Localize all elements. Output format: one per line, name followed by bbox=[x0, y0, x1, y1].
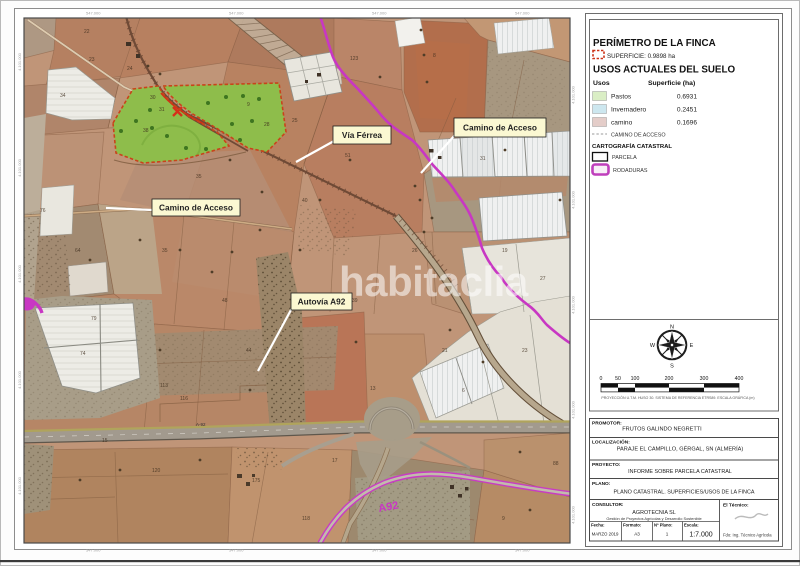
svg-text:44: 44 bbox=[246, 348, 252, 354]
svg-text:79: 79 bbox=[91, 316, 97, 322]
svg-text:8: 8 bbox=[433, 53, 436, 59]
svg-text:100: 100 bbox=[631, 376, 640, 382]
svg-text:175: 175 bbox=[252, 478, 261, 484]
svg-text:9: 9 bbox=[502, 516, 505, 522]
svg-text:4.101.000: 4.101.000 bbox=[17, 476, 22, 495]
svg-text:Formato:: Formato: bbox=[623, 523, 641, 528]
svg-text:31: 31 bbox=[480, 156, 486, 162]
svg-text:Gestión de Proyectos Agrícolas: Gestión de Proyectos Agrícolas y Desarro… bbox=[606, 516, 701, 521]
svg-text:51: 51 bbox=[345, 153, 351, 159]
svg-text:120: 120 bbox=[152, 468, 161, 474]
svg-text:1: 1 bbox=[666, 532, 669, 537]
svg-text:N: N bbox=[670, 325, 674, 331]
svg-text:6: 6 bbox=[462, 388, 465, 394]
svg-text:camino: camino bbox=[611, 120, 633, 127]
svg-text:17: 17 bbox=[332, 458, 338, 464]
svg-text:35: 35 bbox=[162, 248, 168, 254]
svg-text:74: 74 bbox=[80, 351, 86, 357]
svg-text:547.000: 547.000 bbox=[229, 548, 244, 553]
svg-text:4.101.000: 4.101.000 bbox=[571, 85, 576, 104]
svg-text:547.000: 547.000 bbox=[515, 11, 530, 16]
svg-text:4.101.000: 4.101.000 bbox=[17, 158, 22, 177]
svg-text:Camino de Acceso: Camino de Acceso bbox=[159, 202, 233, 212]
svg-text:USOS ACTUALES DEL SUELO: USOS ACTUALES DEL SUELO bbox=[593, 65, 735, 76]
svg-text:40: 40 bbox=[302, 198, 308, 204]
svg-text:13: 13 bbox=[370, 386, 376, 392]
svg-text:CONSULTOR:: CONSULTOR: bbox=[592, 502, 624, 508]
svg-text:123: 123 bbox=[350, 56, 359, 62]
svg-text:Superficie (ha): Superficie (ha) bbox=[648, 80, 695, 87]
svg-text:38: 38 bbox=[143, 128, 149, 134]
svg-text:0.2451: 0.2451 bbox=[677, 107, 698, 114]
svg-text:22: 22 bbox=[84, 29, 90, 35]
svg-text:4.101.000: 4.101.000 bbox=[17, 264, 22, 283]
svg-text:23: 23 bbox=[89, 57, 95, 63]
svg-text:E: E bbox=[690, 343, 694, 349]
svg-text:88: 88 bbox=[553, 461, 559, 467]
svg-text:76: 76 bbox=[40, 208, 46, 214]
svg-text:PLANO:: PLANO: bbox=[592, 481, 611, 487]
svg-text:Fecha:: Fecha: bbox=[591, 523, 605, 528]
svg-text:547.000: 547.000 bbox=[86, 11, 101, 16]
svg-text:S: S bbox=[670, 364, 674, 370]
svg-text:0.6931: 0.6931 bbox=[677, 94, 698, 101]
svg-text:200: 200 bbox=[665, 376, 674, 382]
svg-text:26: 26 bbox=[412, 248, 418, 254]
svg-text:CARTOGRAFÍA CATASTRAL: CARTOGRAFÍA CATASTRAL bbox=[592, 142, 672, 150]
svg-text:PARAJE EL CAMPILLO, GÉRGAL, SN: PARAJE EL CAMPILLO, GÉRGAL, SN (ALMERÍA) bbox=[617, 446, 744, 453]
svg-text:31: 31 bbox=[159, 107, 165, 113]
svg-text:113: 113 bbox=[160, 383, 168, 389]
svg-text:Camino de Acceso: Camino de Acceso bbox=[463, 122, 537, 132]
svg-text:15: 15 bbox=[102, 438, 108, 444]
svg-text:300: 300 bbox=[700, 376, 709, 382]
svg-text:4.101.000: 4.101.000 bbox=[17, 370, 22, 389]
svg-text:El Técnico:: El Técnico: bbox=[723, 503, 749, 509]
svg-text:30: 30 bbox=[150, 95, 156, 101]
svg-text:Fdo: Ing. Técnico Agrícola: Fdo: Ing. Técnico Agrícola bbox=[723, 533, 772, 538]
svg-text:Vía Férrea: Vía Férrea bbox=[342, 130, 383, 140]
svg-text:A-92: A-92 bbox=[196, 422, 206, 427]
svg-text:19: 19 bbox=[502, 248, 508, 254]
svg-text:547.000: 547.000 bbox=[372, 11, 387, 16]
svg-text:35: 35 bbox=[196, 174, 202, 180]
svg-text:INFORME SOBRE PARCELA CATASTRA: INFORME SOBRE PARCELA CATASTRAL bbox=[628, 469, 732, 475]
svg-text:50: 50 bbox=[615, 376, 621, 382]
svg-text:116: 116 bbox=[180, 396, 188, 402]
svg-text:SUPERFICIE: 0.9898 ha: SUPERFICIE: 0.9898 ha bbox=[607, 53, 676, 60]
svg-text:0: 0 bbox=[600, 376, 603, 382]
svg-text:4.101.000: 4.101.000 bbox=[571, 400, 576, 419]
svg-text:habitaclia: habitaclia bbox=[339, 258, 529, 305]
svg-text:25: 25 bbox=[292, 118, 298, 124]
svg-text:PLANO CATASTRAL. SUPERFICIES/U: PLANO CATASTRAL. SUPERFICIES/USOS DE LA … bbox=[614, 490, 755, 496]
svg-text:CAMINO DE ACCESO: CAMINO DE ACCESO bbox=[611, 133, 666, 139]
svg-text:21: 21 bbox=[442, 348, 448, 354]
svg-text:MARZO 2019: MARZO 2019 bbox=[592, 532, 619, 537]
svg-text:A3: A3 bbox=[634, 532, 640, 537]
svg-text:547.000: 547.000 bbox=[229, 11, 244, 16]
svg-text:Nº Plano:: Nº Plano: bbox=[654, 523, 673, 528]
svg-text:PROYECTO:: PROYECTO: bbox=[592, 462, 621, 468]
svg-text:64: 64 bbox=[75, 248, 81, 254]
svg-text:1:7.000: 1:7.000 bbox=[689, 532, 712, 539]
svg-text:PROYECCIÓN U.T.M. HUSO 30. SIS: PROYECCIÓN U.T.M. HUSO 30. SISTEMA DE RE… bbox=[601, 395, 754, 400]
svg-text:W: W bbox=[650, 343, 656, 349]
svg-text:28: 28 bbox=[264, 122, 270, 128]
svg-text:0.1696: 0.1696 bbox=[677, 120, 698, 127]
svg-text:547.000: 547.000 bbox=[86, 548, 101, 553]
svg-text:34: 34 bbox=[60, 93, 66, 99]
svg-text:118: 118 bbox=[302, 516, 310, 522]
svg-text:FRUTOS GALINDO NEGRETTI: FRUTOS GALINDO NEGRETTI bbox=[622, 427, 702, 433]
svg-text:547.000: 547.000 bbox=[372, 548, 387, 553]
svg-text:RODADURAS: RODADURAS bbox=[613, 168, 648, 174]
svg-text:24: 24 bbox=[127, 66, 133, 72]
svg-text:547.000: 547.000 bbox=[515, 548, 530, 553]
svg-text:400: 400 bbox=[735, 376, 744, 382]
svg-text:Autovía A92: Autovía A92 bbox=[298, 296, 346, 306]
svg-text:48: 48 bbox=[222, 298, 228, 304]
svg-text:Escala:: Escala: bbox=[684, 523, 699, 528]
svg-text:PERÍMETRO DE LA FINCA: PERÍMETRO DE LA FINCA bbox=[593, 37, 716, 49]
svg-text:Pastos: Pastos bbox=[611, 94, 632, 101]
svg-text:27: 27 bbox=[540, 276, 546, 282]
svg-text:23: 23 bbox=[522, 348, 528, 354]
svg-text:PARCELA: PARCELA bbox=[612, 155, 637, 161]
svg-text:Invernadero: Invernadero bbox=[611, 107, 647, 114]
svg-text:4.101.000: 4.101.000 bbox=[571, 190, 576, 209]
svg-text:Usos: Usos bbox=[593, 80, 610, 87]
svg-text:4.101.000: 4.101.000 bbox=[17, 52, 22, 71]
svg-text:4.101.000: 4.101.000 bbox=[571, 295, 576, 314]
svg-text:4.101.000: 4.101.000 bbox=[571, 505, 576, 524]
svg-text:9: 9 bbox=[247, 102, 250, 108]
svg-text:PROMOTOR:: PROMOTOR: bbox=[592, 421, 622, 427]
